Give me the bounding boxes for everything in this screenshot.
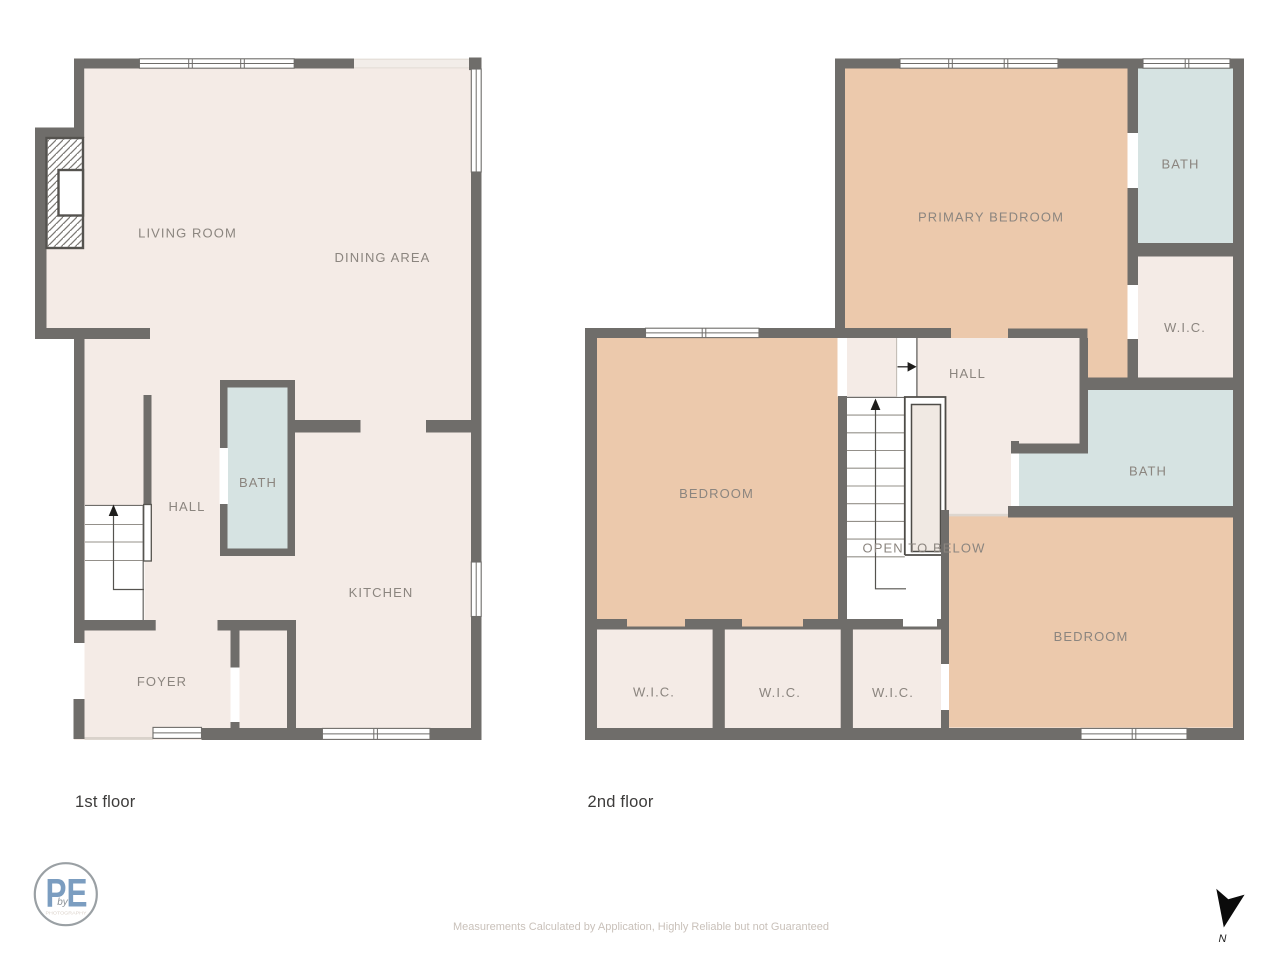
svg-text:BEDROOM: BEDROOM <box>1054 629 1129 644</box>
svg-text:PHOTOGRAPHY: PHOTOGRAPHY <box>46 911 87 916</box>
svg-text:Measurements Calculated by App: Measurements Calculated by Application, … <box>453 921 829 933</box>
svg-text:PRIMARY BEDROOM: PRIMARY BEDROOM <box>918 210 1064 225</box>
svg-text:2nd floor: 2nd floor <box>588 793 654 811</box>
svg-text:1st floor: 1st floor <box>75 793 136 811</box>
svg-text:W.I.C.: W.I.C. <box>1164 320 1206 335</box>
svg-text:BATH: BATH <box>1129 464 1167 479</box>
svg-text:PE: PE <box>46 872 88 916</box>
svg-text:FOYER: FOYER <box>137 674 187 689</box>
svg-text:W.I.C.: W.I.C. <box>872 685 914 700</box>
svg-text:LIVING ROOM: LIVING ROOM <box>138 226 237 241</box>
svg-text:BATH: BATH <box>239 475 277 490</box>
svg-text:by: by <box>57 897 69 908</box>
svg-text:OPEN TO BELOW: OPEN TO BELOW <box>863 541 986 556</box>
svg-text:HALL: HALL <box>949 366 986 381</box>
svg-text:HALL: HALL <box>169 499 206 514</box>
svg-text:KITCHEN: KITCHEN <box>349 585 414 600</box>
svg-text:N: N <box>1219 933 1227 945</box>
svg-text:W.I.C.: W.I.C. <box>633 685 675 700</box>
svg-text:BEDROOM: BEDROOM <box>679 486 754 501</box>
svg-text:W.I.C.: W.I.C. <box>759 685 801 700</box>
svg-text:BATH: BATH <box>1161 157 1199 172</box>
svg-text:DINING AREA: DINING AREA <box>335 250 431 265</box>
